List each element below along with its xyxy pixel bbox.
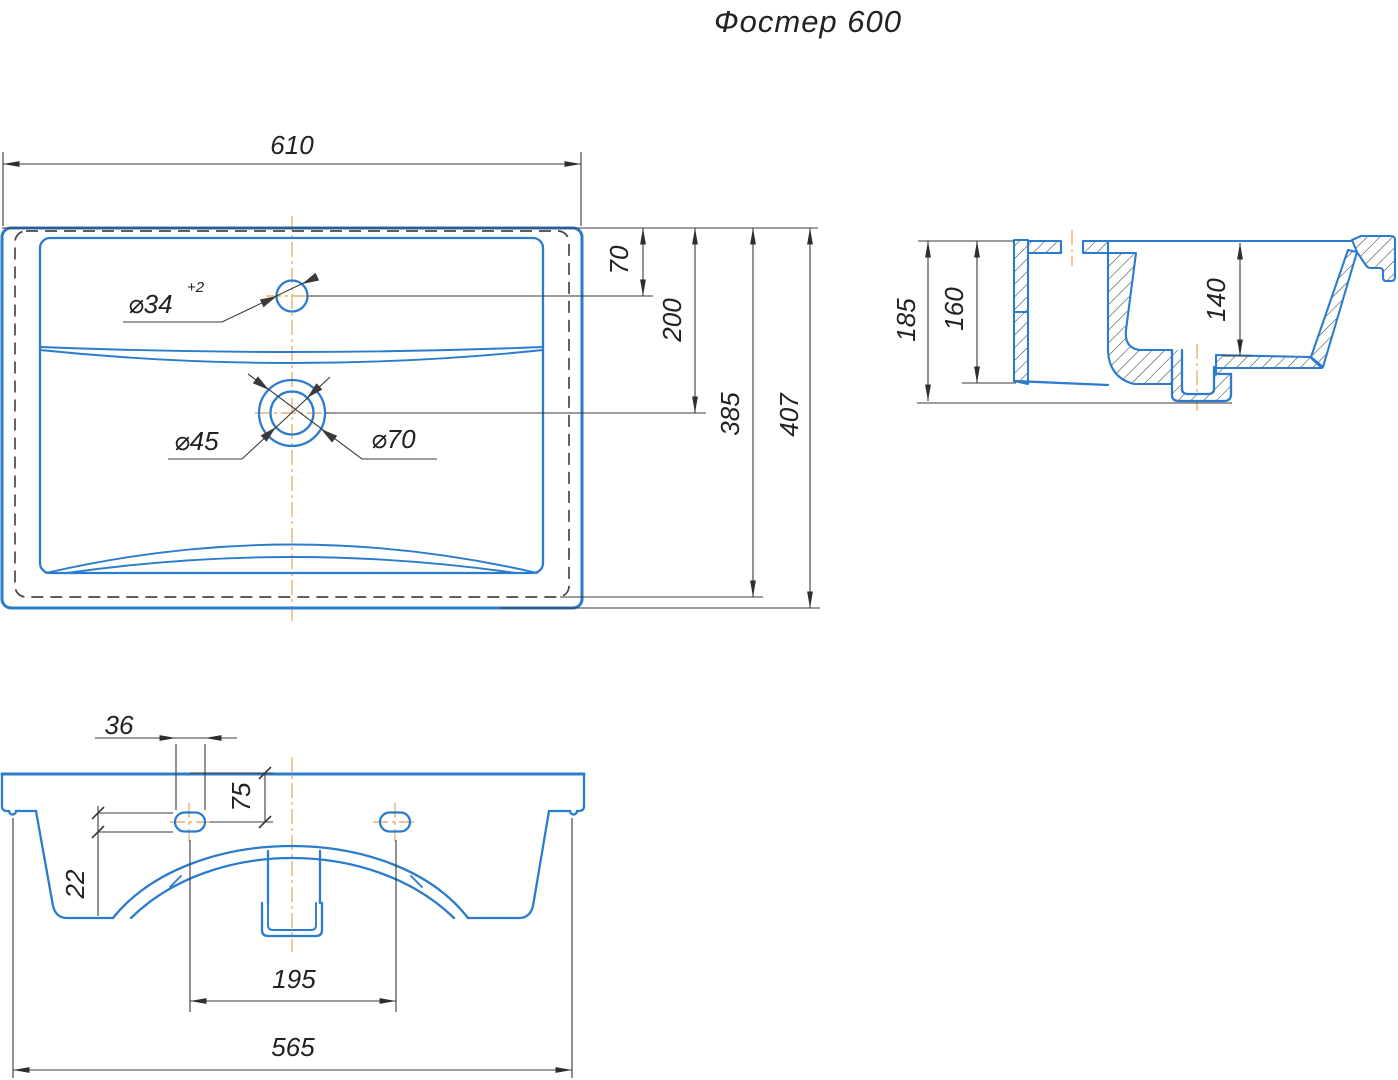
dim-hidden-depth: 385	[715, 392, 745, 436]
plan-centerlines	[255, 216, 330, 621]
dim-overall-width: 610	[270, 130, 314, 160]
dim-slot-offset: 75	[226, 782, 256, 811]
dim-drain-offset: 200	[657, 298, 687, 343]
technical-drawing: Фостер 600	[0, 0, 1398, 1080]
dim-drain-outer: ⌀70	[371, 424, 416, 454]
dim-faucet-offset: 70	[604, 245, 634, 274]
dim-faucet-hole: ⌀34	[128, 289, 173, 319]
plan-dimensions: 610 70 200 385 407 ⌀34 +2 ⌀45 ⌀70	[2, 130, 820, 608]
dim-drain-inner: ⌀45	[174, 426, 219, 456]
front-view: 36 75 22 195 565	[2, 710, 584, 1078]
dim-faucet-hole-tolerance: +2	[187, 279, 205, 296]
dim-base-width: 565	[271, 1032, 315, 1062]
dim-slot-height: 22	[60, 869, 90, 899]
front-centerlines	[170, 757, 417, 952]
dim-overall-height: 185	[891, 298, 921, 342]
section-view: 185 160 140	[891, 230, 1395, 414]
drawing-sheet: Фостер 600	[0, 0, 1398, 1080]
dim-overall-depth: 407	[774, 392, 804, 437]
dim-slot-spacing: 195	[272, 964, 316, 994]
dim-slot-length: 36	[105, 710, 134, 740]
dim-bowl-depth: 140	[1201, 278, 1231, 322]
dim-back-height: 160	[939, 287, 969, 331]
front-outline	[2, 774, 584, 936]
plan-view: 610 70 200 385 407 ⌀34 +2 ⌀45 ⌀70	[2, 130, 820, 621]
section-outline	[1014, 241, 1352, 401]
page-title: Фостер 600	[714, 4, 902, 39]
